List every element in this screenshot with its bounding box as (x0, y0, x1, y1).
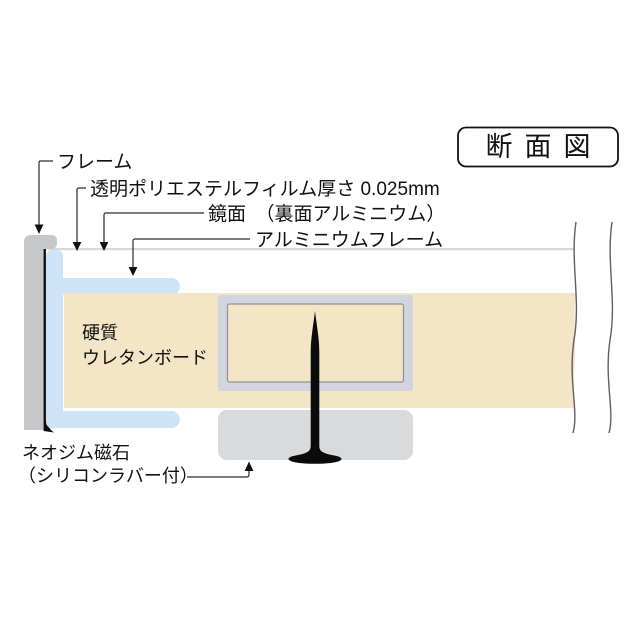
section-title-label: 断面図 (486, 132, 603, 162)
aluminum-frame-leader-line (133, 239, 250, 268)
magnet-label-line2: （シリコンラバー付） (18, 466, 198, 486)
cross-section-diagram: 断面図 フレーム 透明ポリエステルフィルム厚さ 0.025mm 鏡面 （裏面アル… (0, 0, 640, 640)
mirror-leader-line (104, 213, 204, 243)
break-line-right (608, 222, 612, 433)
frame-arrow-down-icon (35, 225, 44, 235)
film-leader-line (77, 188, 86, 243)
magnet-arrow-up-icon (245, 462, 254, 472)
callout-film-label: 透明ポリエステルフィルム厚さ 0.025mm (90, 178, 440, 200)
board-label-line1: 硬質 (82, 323, 118, 343)
aluminum-frame-top-arm (50, 278, 180, 295)
callout-frame-label: フレーム (57, 152, 132, 173)
aluminum-frame-bottom-arm (50, 411, 180, 428)
callout-mirror-label: 鏡面 （裏面アルミニウム） (208, 203, 445, 225)
aluminum-frame-bar (46, 250, 63, 428)
callout-aluminum-frame-label: アルミニウムフレーム (255, 230, 443, 251)
frame-leader-line (39, 161, 53, 225)
section-title-box: 断面図 (458, 128, 618, 167)
board-label-line2: ウレタンボード (82, 348, 208, 368)
aluminum-frame-arrow-down-icon (129, 267, 138, 276)
magnet-label-line1: ネオジム磁石 (22, 443, 130, 463)
